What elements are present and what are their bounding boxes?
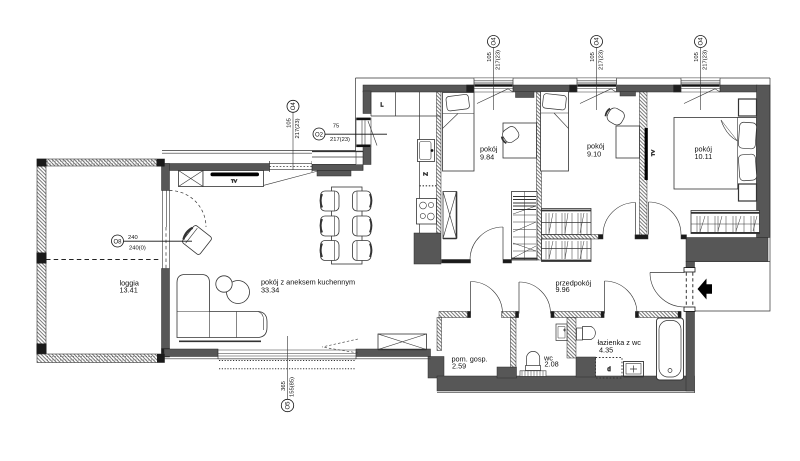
svg-text:TV: TV: [231, 179, 238, 184]
svg-text:O4: O4: [699, 37, 705, 46]
svg-text:105: 105: [694, 52, 700, 62]
svg-text:Z: Z: [424, 172, 430, 176]
svg-text:33.34: 33.34: [261, 285, 279, 294]
svg-text:217(23): 217(23): [295, 118, 301, 138]
svg-text:10.11: 10.11: [695, 152, 713, 161]
svg-text:105: 105: [487, 52, 493, 62]
svg-text:TV: TV: [651, 149, 657, 156]
svg-text:217(23): 217(23): [330, 137, 350, 143]
svg-text:O4: O4: [291, 102, 297, 111]
svg-text:9.10: 9.10: [587, 149, 601, 158]
svg-text:217(23): 217(23): [496, 50, 502, 70]
svg-text:O2: O2: [315, 132, 324, 138]
svg-text:105: 105: [590, 52, 596, 62]
svg-text:217(23): 217(23): [703, 50, 709, 70]
svg-text:365: 365: [281, 381, 287, 391]
svg-text:2.08: 2.08: [545, 360, 559, 369]
svg-text:217(23): 217(23): [599, 50, 605, 70]
svg-text:240: 240: [128, 235, 138, 241]
svg-text:2.59: 2.59: [452, 361, 466, 370]
svg-text:13.41: 13.41: [120, 286, 138, 295]
svg-text:75: 75: [333, 124, 339, 130]
svg-text:9.84: 9.84: [480, 152, 494, 161]
svg-text:4.35: 4.35: [599, 346, 613, 355]
svg-text:O4: O4: [595, 37, 601, 46]
svg-text:9.96: 9.96: [556, 285, 570, 294]
svg-text:155(85): 155(85): [290, 377, 296, 397]
svg-text:L: L: [381, 103, 384, 109]
svg-text:240(0): 240(0): [129, 246, 146, 252]
svg-text:d: d: [607, 367, 610, 373]
svg-text:O5: O5: [286, 401, 292, 410]
svg-text:105: 105: [287, 118, 293, 128]
svg-text:O8: O8: [113, 239, 122, 245]
svg-text:O4: O4: [492, 37, 498, 46]
